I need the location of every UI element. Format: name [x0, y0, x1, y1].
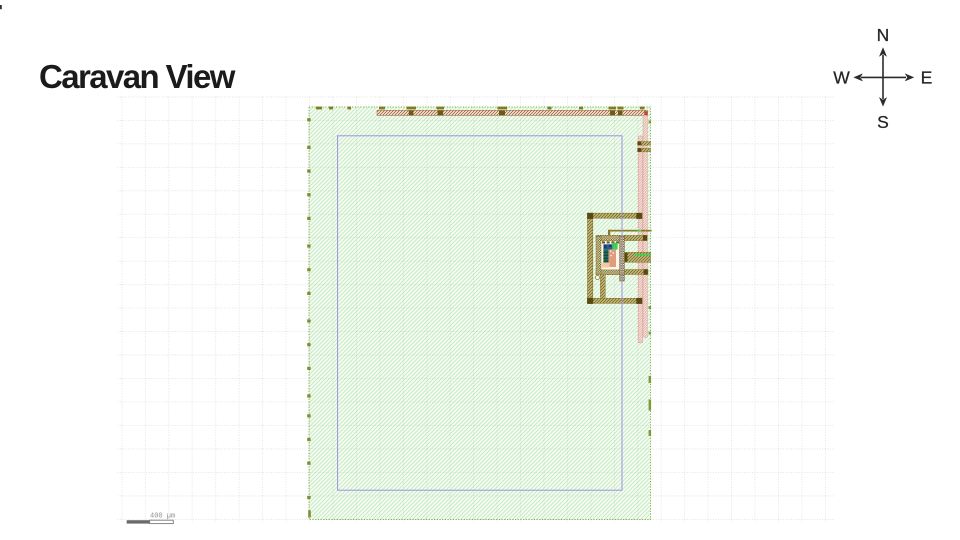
svg-text:S: S — [877, 112, 889, 132]
svg-text:N: N — [877, 25, 890, 45]
svg-text:400 µm: 400 µm — [150, 513, 175, 521]
svg-text:E: E — [921, 68, 933, 88]
svg-text:W: W — [833, 68, 850, 88]
